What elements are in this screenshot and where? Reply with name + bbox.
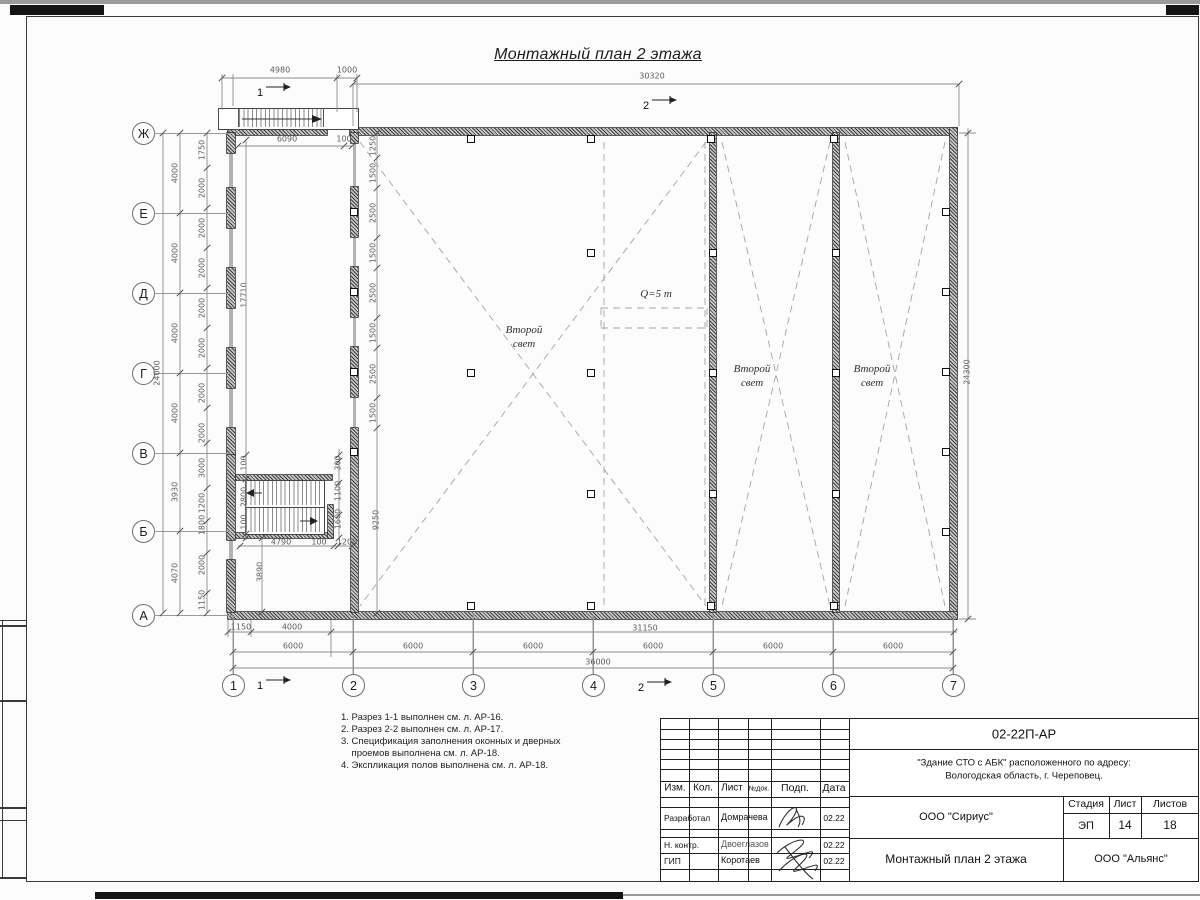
title-block-line (661, 769, 849, 770)
note-line: 3. Спецификация заполнения оконных и две… (341, 736, 561, 748)
title-block-line (1141, 796, 1142, 838)
drawing-sheet: Монтажный план 2 этажа ЖЕДГВБА1234567498… (0, 0, 1200, 900)
title-block-line (661, 729, 849, 730)
title-block-line (820, 719, 821, 881)
title-block-line (661, 869, 849, 870)
title-block-line (1063, 813, 1198, 814)
note-line: 2. Разрез 2-2 выполнен см. л. АР-17. (341, 724, 561, 736)
title-block-line (661, 853, 849, 854)
title-block-line (661, 759, 849, 760)
signature-stroke (779, 808, 804, 827)
notes-block: 1. Разрез 1-1 выполнен см. л. АР-16.2. Р… (341, 712, 561, 771)
title-block-line (1109, 796, 1110, 838)
title-block-line (661, 781, 849, 782)
title-block-line (661, 749, 849, 750)
title-block-line (849, 719, 850, 881)
title-block-line (661, 837, 849, 838)
signature-stroke (777, 840, 817, 879)
note-line: 4. Экспликация полов выполнена см. л. АР… (341, 760, 561, 772)
title-block-line (849, 749, 1198, 750)
title-block-line (771, 719, 772, 881)
note-line: проемов выполнена см. л. АР-18. (341, 748, 561, 760)
title-block-line (689, 719, 690, 881)
title-block-line (661, 829, 849, 830)
title-block-line (661, 797, 849, 798)
title-block-line (748, 719, 749, 881)
title-block-line (849, 796, 1198, 797)
title-block: 02-22П-АР "Здание СТО с АБК" расположенн… (660, 718, 1199, 882)
title-block-line (661, 807, 849, 808)
title-block-line (718, 719, 719, 881)
title-block-line (661, 739, 849, 740)
note-line: 1. Разрез 1-1 выполнен см. л. АР-16. (341, 712, 561, 724)
signatures (661, 719, 1198, 881)
title-block-line (849, 838, 1198, 839)
